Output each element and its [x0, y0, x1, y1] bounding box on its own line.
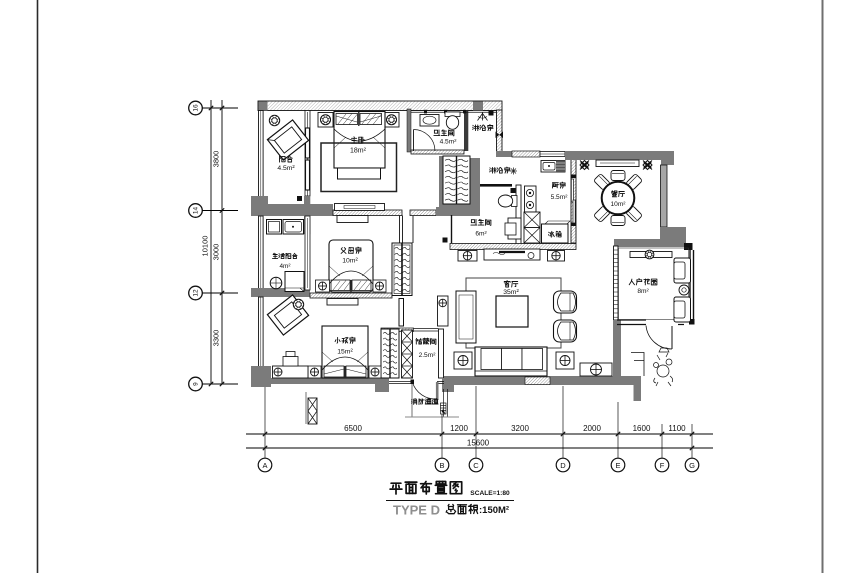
svg-text:D: D	[560, 461, 566, 470]
svg-text:10m²: 10m²	[342, 258, 358, 265]
svg-text:E: E	[615, 461, 620, 470]
svg-text:14: 14	[193, 207, 200, 215]
svg-text:F: F	[660, 461, 665, 470]
svg-text:2000: 2000	[583, 424, 601, 433]
svg-text:C: C	[473, 461, 479, 470]
svg-text:16: 16	[193, 104, 200, 112]
svg-text:6m²: 6m²	[475, 231, 487, 238]
svg-text:3000: 3000	[212, 244, 221, 261]
svg-text:4.5m²: 4.5m²	[277, 165, 295, 172]
svg-text:4m²: 4m²	[279, 263, 290, 270]
svg-text:A: A	[262, 461, 267, 470]
svg-text:2.5m²: 2.5m²	[419, 352, 437, 359]
svg-text:9: 9	[193, 382, 200, 386]
svg-text:SCALE=1:80: SCALE=1:80	[470, 490, 510, 497]
svg-text:1200: 1200	[450, 424, 468, 433]
svg-text:5.5m²: 5.5m²	[551, 194, 569, 201]
svg-text:15600: 15600	[467, 439, 490, 448]
svg-text:35m²: 35m²	[503, 289, 519, 296]
svg-text:3200: 3200	[511, 424, 529, 433]
svg-text:6500: 6500	[344, 424, 362, 433]
svg-text:B: B	[439, 461, 444, 470]
svg-text:G: G	[689, 461, 695, 470]
svg-text:1100: 1100	[668, 424, 686, 433]
svg-text:4.5m²: 4.5m²	[440, 139, 458, 146]
svg-text::150M²: :150M²	[479, 505, 509, 516]
svg-text:10100: 10100	[201, 236, 210, 257]
svg-text:1600: 1600	[633, 424, 651, 433]
svg-text:3800: 3800	[212, 151, 221, 168]
svg-text:10m²: 10m²	[610, 201, 626, 208]
svg-text:3300: 3300	[212, 330, 221, 347]
svg-text:TYPE D: TYPE D	[393, 503, 440, 518]
svg-text:15m²: 15m²	[337, 349, 353, 356]
svg-text:12: 12	[193, 289, 200, 297]
svg-text:18m²: 18m²	[350, 148, 367, 155]
svg-text:8m²: 8m²	[637, 288, 649, 295]
